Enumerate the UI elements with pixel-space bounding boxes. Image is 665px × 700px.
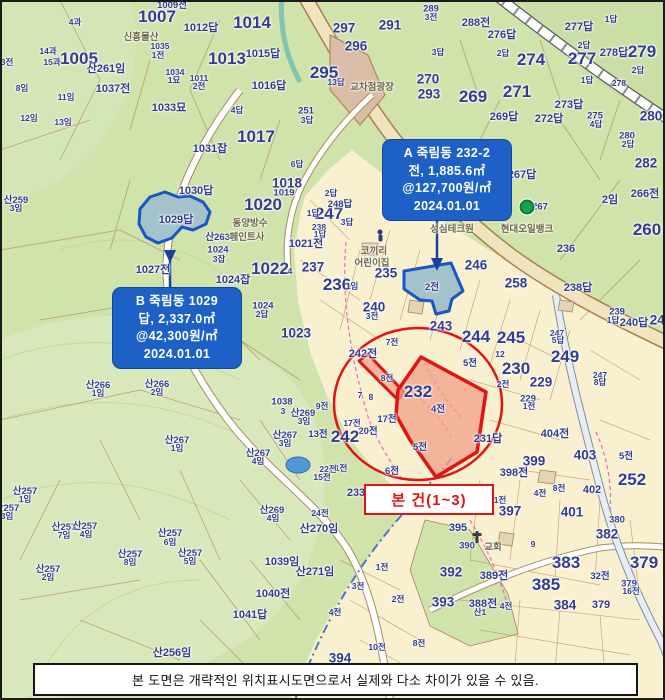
parcel-label: 278답	[600, 44, 628, 60]
parcel-label: 1답	[581, 74, 594, 86]
parcel-label: 395	[449, 522, 467, 534]
parcel-label: 20전	[358, 423, 377, 437]
parcel-label: 8전	[553, 482, 566, 494]
parcel-label: 2답	[497, 47, 510, 59]
parcel-label: 242	[331, 427, 359, 447]
cadastral-map-view: 10071009전4과14과15과신흥물산10351전1005산261임3전8임…	[0, 0, 665, 700]
parcel-label: 5전	[619, 448, 633, 462]
parcel-label: 269답	[490, 108, 518, 124]
parcel-label: 1임	[92, 387, 105, 399]
parcel-label: 278	[612, 78, 626, 88]
map-labels: 10071009전4과14과15과신흥물산10351전1005산261임3전8임…	[0, 0, 665, 700]
parcel-label: 5전	[463, 355, 477, 369]
parcel-label: 8	[369, 392, 374, 402]
parcel-label: 3전	[366, 310, 379, 322]
parcel-label: 252	[618, 470, 646, 490]
parcel-label: 6전	[385, 463, 399, 477]
parcel-label: 1답	[607, 314, 620, 326]
parcel-label: 1전	[376, 561, 389, 573]
parcel-label: 243	[430, 319, 453, 334]
parcel-label: 404전	[541, 425, 569, 441]
subject-label: 본 건(1~3)	[364, 484, 494, 515]
parcel-label: 277	[568, 49, 596, 69]
parcel-label: 3전	[352, 580, 365, 592]
parcel-label: 현대오일뱅크	[501, 221, 553, 235]
parcel-label: 266전	[631, 185, 659, 201]
parcel-label: 4임	[80, 528, 93, 540]
parcel-label: 3	[281, 406, 286, 416]
parcel-label: 237	[302, 260, 325, 275]
parcel-label: 8답	[594, 376, 607, 388]
parcel-label: 산256임	[153, 644, 192, 660]
parcel-label: 402	[583, 484, 601, 496]
parcel-label: 1022	[251, 259, 289, 279]
parcel-label: 10전	[368, 641, 385, 653]
parcel-label: 4임	[267, 512, 280, 524]
parcel-label: 241	[650, 313, 665, 328]
parcel-label: 270	[417, 72, 440, 87]
parcel-label: 1023	[281, 326, 311, 341]
parcel-label: 379	[592, 599, 610, 611]
parcel-label: 1024잡	[216, 271, 251, 287]
parcel-label: 1전	[523, 400, 536, 412]
parcel-label: 1임	[19, 493, 32, 505]
parcel-label: 2답	[256, 308, 269, 320]
parcel-label: 17전	[377, 411, 396, 425]
parcel-label: 13전	[308, 426, 327, 440]
parcel-label: 8전	[381, 372, 394, 384]
parcel-label: 4전	[500, 600, 513, 612]
parcel-label: 1답	[307, 207, 320, 219]
parcel-label: 382	[596, 527, 619, 542]
parcel-label: 271	[503, 82, 531, 102]
parcel-label: 1040전	[256, 585, 291, 601]
parcel-label: 296	[345, 39, 368, 54]
parcel-label: 249	[551, 347, 579, 367]
callout-parcel-b[interactable]: B 죽림동 1029 답, 2,337.0㎡ @42,300원/㎡ 2024.0…	[112, 287, 242, 369]
parcel-label: 246	[465, 258, 488, 273]
parcel-label: 1012답	[184, 19, 219, 35]
parcel-label: 5전	[413, 439, 427, 453]
parcel-label: 3잡	[213, 253, 226, 265]
parcel-label: 245	[497, 328, 525, 348]
parcel-label: 1039임	[265, 553, 300, 569]
parcel-label: 279	[628, 42, 656, 62]
parcel-label: 1015답	[246, 45, 281, 61]
parcel-label: 9	[531, 539, 536, 549]
callout-a-line3: @127,700원/㎡	[402, 180, 491, 198]
parcel-label: 401	[561, 505, 584, 520]
parcel-label: 393	[432, 595, 455, 610]
parcel-label: 동양방수	[233, 215, 268, 229]
parcel-label: 293	[418, 87, 441, 102]
parcel-label: 32전	[590, 568, 609, 582]
parcel-label: 2임	[151, 386, 164, 398]
pedestrian-icon	[378, 230, 383, 235]
parcel-label: 1021전	[289, 235, 324, 251]
parcel-label: 1030답	[179, 182, 214, 198]
parcel-label: 페인트사	[230, 229, 265, 243]
parcel-label: 230	[502, 359, 530, 379]
parcel-label: 24전	[311, 507, 328, 519]
parcel-label: 1임	[171, 442, 184, 454]
parcel-label: 산270임	[300, 520, 339, 536]
parcel-label: 5임	[184, 555, 197, 567]
parcel-label: 229	[530, 375, 553, 390]
callout-b-line1: B 죽림동 1029	[136, 293, 218, 311]
callout-a-line1: A 죽림동 232-2	[404, 145, 490, 163]
parcel-label: 282	[635, 156, 658, 171]
parcel-label: 1033묘	[152, 99, 187, 115]
parcel-label: 4임	[252, 455, 265, 467]
parcel-label: 238답	[564, 279, 592, 295]
parcel-label: 277답	[565, 18, 593, 34]
parcel-label: 3전	[1, 56, 14, 68]
callout-parcel-a[interactable]: A 죽림동 232-2 전, 1,885.6㎡ @127,700원/㎡ 2024…	[382, 139, 512, 221]
parcel-label: 2전	[392, 593, 405, 605]
parcel-label: 383	[552, 553, 580, 573]
parcel-label: 5답	[552, 334, 565, 346]
parcel-label: 3임	[10, 202, 23, 214]
parcel-label: 1임	[346, 280, 359, 292]
parcel-label: 280	[640, 109, 663, 124]
parcel-label: 4답	[231, 104, 244, 116]
parcel-label: 1016답	[252, 77, 287, 93]
parcel-label: 7	[358, 390, 363, 400]
parcel-label: 6답	[291, 158, 304, 170]
parcel-label: 3임	[279, 437, 292, 449]
parcel-label: 15전	[313, 471, 330, 483]
interchange-icon	[520, 200, 535, 215]
callout-a-line2: 전, 1,885.6㎡	[408, 163, 485, 181]
church-icon	[476, 531, 479, 543]
parcel-label: 269	[459, 87, 487, 107]
parcel-label: 274	[517, 50, 545, 70]
parcel-label: 236	[557, 243, 575, 255]
parcel-label: 398전	[500, 464, 528, 480]
parcel-label: 16전	[622, 585, 639, 597]
callout-b-line4: 2024.01.01	[144, 346, 211, 364]
parcel-label: 2답	[622, 138, 635, 150]
parcel-label: 교차점광장	[350, 79, 394, 93]
disclaimer-text: 본 도면은 개략적인 위치표시도면으로서 실제와 다소 차이가 있을 수 있음.	[132, 670, 539, 689]
parcel-label: 산1	[474, 606, 487, 618]
parcel-label: 1답	[605, 13, 618, 25]
parcel-label: 242전	[349, 345, 377, 361]
parcel-label: 2임	[42, 571, 55, 583]
parcel-label: 390	[459, 541, 475, 552]
parcel-label: 4전	[329, 606, 342, 618]
parcel-label: 258	[505, 276, 528, 291]
parcel-label: 15과	[43, 56, 60, 68]
parcel-label: 8임	[124, 556, 137, 568]
parcel-label: 4답	[590, 118, 603, 130]
parcel-label: 297	[333, 21, 356, 36]
parcel-label: 1041답	[233, 606, 268, 622]
parcel-label: 232	[404, 382, 432, 402]
parcel-label: 1014	[233, 13, 271, 33]
disclaimer-box: 본 도면은 개략적인 위치표시도면으로서 실제와 다소 차이가 있을 수 있음.	[33, 663, 638, 696]
parcel-label: 2전	[425, 279, 439, 293]
parcel-label: 4	[288, 266, 293, 276]
parcel-label: 260	[633, 220, 661, 240]
parcel-label: 2임	[602, 191, 618, 207]
parcel-label: 13답	[327, 76, 344, 88]
parcel-label: 13임	[54, 116, 71, 128]
parcel-label: 산271임	[296, 563, 335, 579]
parcel-label: 1017	[237, 127, 275, 147]
parcel-label: 233	[347, 487, 365, 499]
parcel-label: 384	[554, 598, 577, 613]
parcel-label: 392	[440, 565, 463, 580]
parcel-label: 3답	[341, 216, 354, 228]
parcel-label: 6임	[164, 536, 177, 548]
parcel-label: 4과	[69, 16, 82, 28]
parcel-label: 3답	[432, 46, 445, 58]
parcel-label: 8전	[413, 637, 426, 649]
parcel-label: 4전	[431, 401, 445, 415]
parcel-label: 1027전	[136, 261, 171, 277]
callout-a-line4: 2024.01.01	[414, 198, 481, 216]
parcel-label: 240답	[620, 314, 648, 330]
parcel-label: 교회	[484, 539, 501, 553]
parcel-label: 397	[499, 504, 522, 519]
parcel-label: 267답	[508, 166, 536, 182]
parcel-label: 235	[375, 266, 398, 281]
parcel-label: 2전	[497, 378, 510, 390]
parcel-label: 389전	[480, 567, 508, 583]
parcel-label: 3임	[1, 510, 14, 522]
parcel-label: 291	[379, 18, 402, 33]
parcel-label: 1031잡	[193, 140, 228, 156]
parcel-label: 380	[609, 515, 625, 526]
parcel-label: 1037전	[96, 80, 131, 96]
parcel-label: 1009전	[157, 0, 187, 11]
parcel-label: 11임	[58, 91, 75, 103]
parcel-label: 8임	[16, 82, 29, 94]
callout-b-line2: 답, 2,337.0㎡	[138, 311, 215, 329]
parcel-label: 3답	[301, 114, 314, 126]
parcel-label: 2답	[632, 64, 645, 76]
parcel-label: 2답	[578, 39, 591, 51]
parcel-label: 9전	[316, 400, 329, 412]
parcel-label: 273답	[555, 96, 583, 112]
parcel-label: 1묘	[168, 74, 181, 86]
parcel-label: 1018	[272, 176, 302, 191]
parcel-label: 231답	[474, 430, 502, 446]
parcel-label: 2답	[325, 187, 338, 199]
parcel-label: 379	[630, 553, 658, 573]
parcel-label: 1전	[152, 49, 165, 61]
callout-b-line3: @42,300원/㎡	[136, 328, 218, 346]
parcel-label: 산261임	[87, 60, 126, 76]
parcel-label: 성심테크원	[430, 221, 474, 235]
parcel-label: 3전	[425, 11, 438, 23]
parcel-label: 7임	[58, 529, 71, 541]
parcel-label: 244	[462, 327, 490, 347]
parcel-label: 403	[574, 448, 597, 463]
parcel-label: 2전	[193, 80, 206, 92]
parcel-label: 276답	[488, 26, 516, 42]
subject-label-text: 본 건(1~3)	[391, 489, 466, 510]
parcel-label: 385	[532, 575, 560, 595]
parcel-label: 272답	[535, 110, 563, 126]
parcel-label: 1013	[208, 49, 246, 69]
parcel-label: 4전	[534, 487, 547, 499]
parcel-label: 12	[495, 349, 504, 359]
parcel-label: 288전	[462, 14, 490, 30]
parcel-label: 7전	[386, 336, 399, 348]
parcel-label: 1029답	[159, 211, 194, 227]
parcel-label: 12임	[20, 112, 37, 124]
